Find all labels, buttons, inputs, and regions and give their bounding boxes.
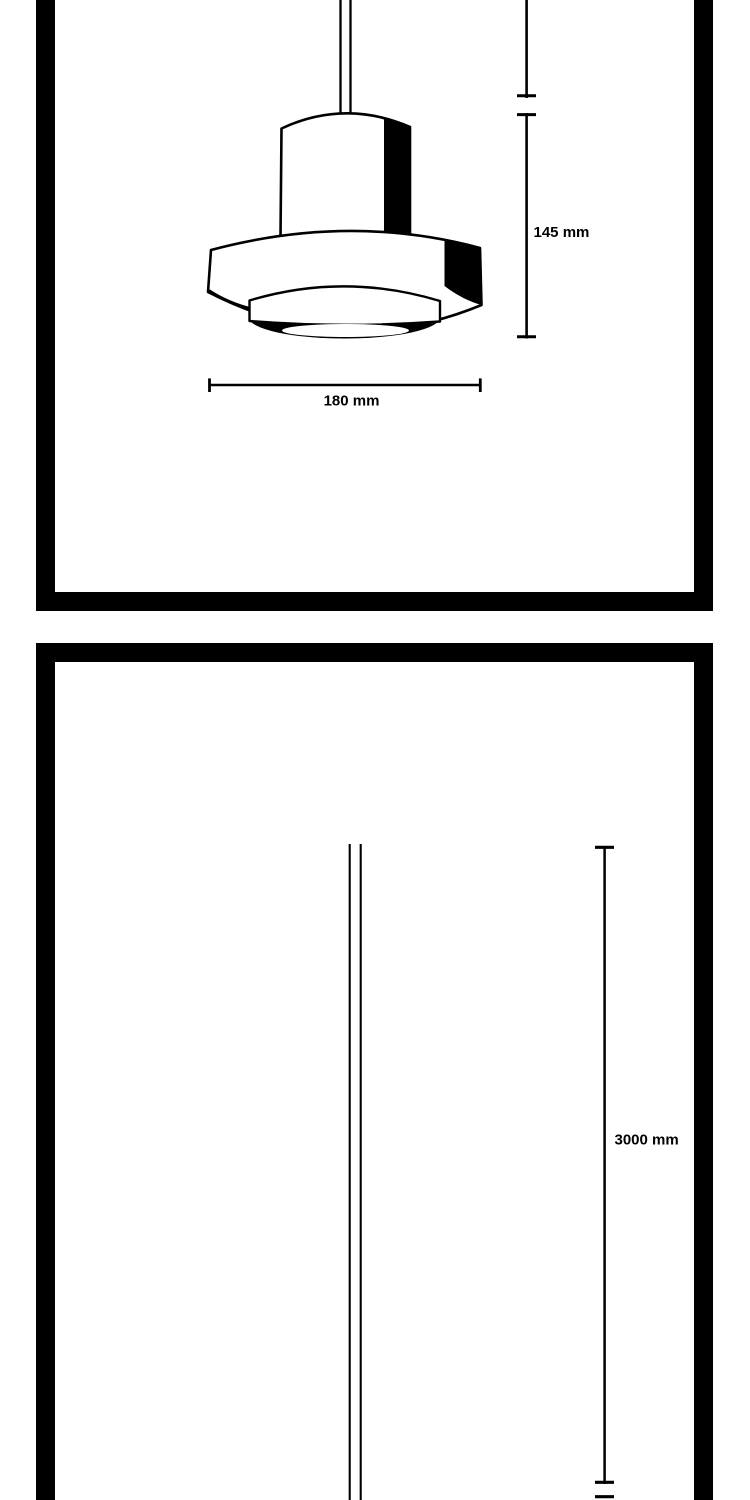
cord-line [341,0,351,116]
lamp-cylinder-shading [384,118,410,237]
dimension-label-cord-length: 3000 mm [615,1132,679,1149]
panel-lamp-head: 145 mm 180 mm [46,0,704,602]
dimension-width: 180 mm [210,378,481,409]
lamp-light-aperture [282,324,409,337]
dimension-height: 145 mm [517,0,589,339]
cord-line [350,844,361,1500]
product-dimension-sheet: 145 mm 180 mm [0,0,750,1500]
dimension-label-height: 145 mm [534,224,590,241]
dimension-cord-length: 3000 mm [595,846,679,1497]
diagram-canvas: 145 mm 180 mm [0,0,750,1500]
dimension-label-width: 180 mm [324,393,380,410]
panel-cord-length: 3000 mm [46,653,704,1500]
